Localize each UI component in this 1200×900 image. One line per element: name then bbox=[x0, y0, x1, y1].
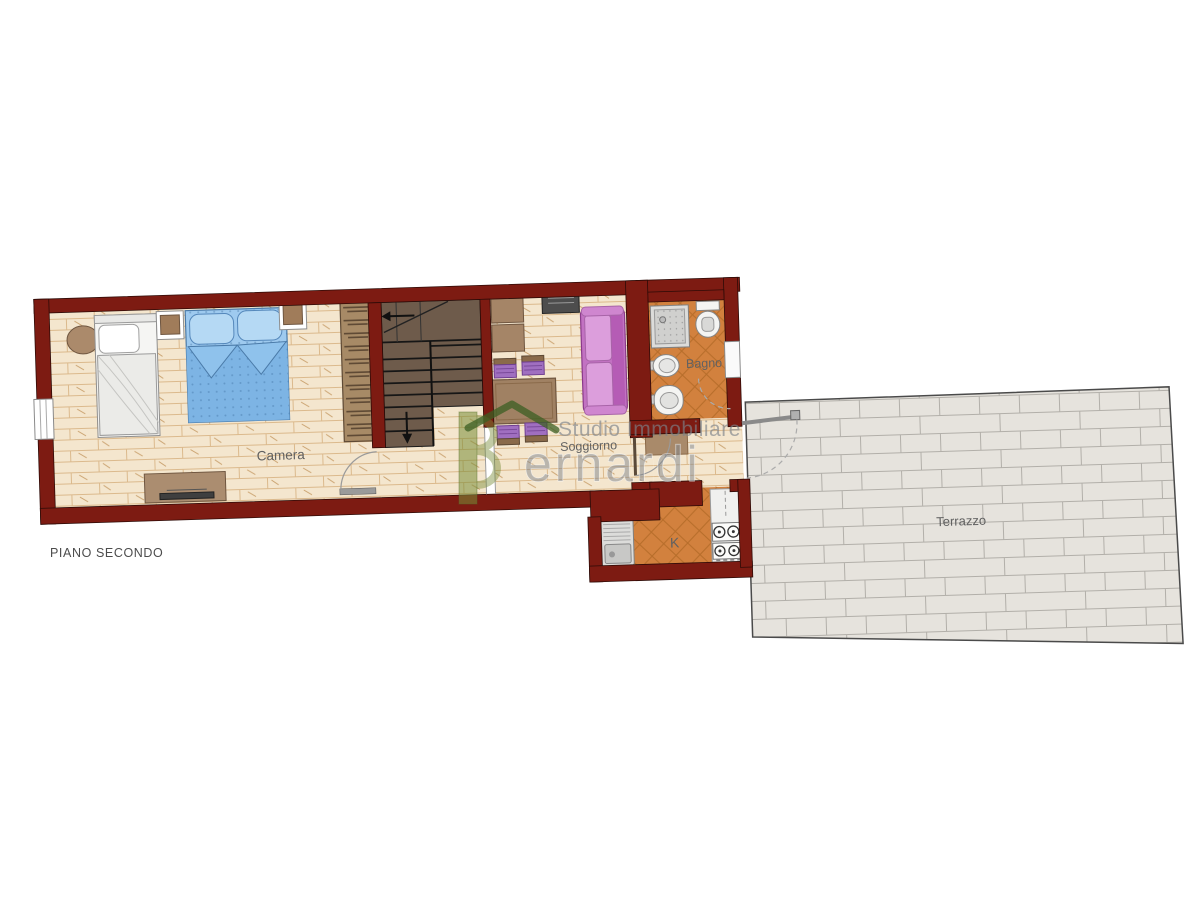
watermark-brand-text: ernardi bbox=[524, 436, 701, 492]
chair bbox=[494, 358, 517, 378]
shower bbox=[650, 305, 689, 348]
wall-soggiorno-bagno bbox=[625, 280, 652, 438]
wall-kitchen-right bbox=[738, 479, 753, 567]
double-bed-pillow-left bbox=[189, 313, 234, 344]
wall-right-upper bbox=[723, 277, 739, 341]
tv-set bbox=[160, 492, 214, 500]
window-left-wall bbox=[34, 399, 54, 440]
floor-title: PIANO SECONDO bbox=[50, 546, 163, 560]
kitchen-sink bbox=[600, 519, 634, 567]
double-bed bbox=[185, 308, 289, 423]
cabinet-lower bbox=[492, 324, 525, 352]
dining-table bbox=[491, 378, 556, 424]
floor-plan-page: Camera Soggiorno Bagno K Terrazzo Studio… bbox=[0, 0, 1200, 900]
sofa bbox=[580, 306, 627, 415]
toilet bbox=[695, 301, 720, 338]
floor-plan-canvas: Camera Soggiorno Bagno K Terrazzo Studio… bbox=[0, 0, 1200, 900]
wall-bagno-top bbox=[648, 290, 724, 302]
label-bagno: Bagno bbox=[686, 356, 723, 371]
cabinet-upper bbox=[491, 298, 524, 323]
double-bed-pillow-right bbox=[237, 310, 282, 341]
label-kitchen: K bbox=[670, 534, 680, 550]
bedside-chair-left bbox=[156, 311, 184, 340]
tv-desk bbox=[144, 472, 226, 504]
single-bed bbox=[94, 314, 160, 438]
wall-left-upper bbox=[34, 299, 52, 399]
label-terrace: Terrazzo bbox=[936, 513, 986, 530]
label-camera: Camera bbox=[257, 447, 306, 464]
single-bed-pillow bbox=[99, 324, 140, 353]
chair bbox=[522, 355, 545, 375]
chair bbox=[497, 425, 520, 445]
